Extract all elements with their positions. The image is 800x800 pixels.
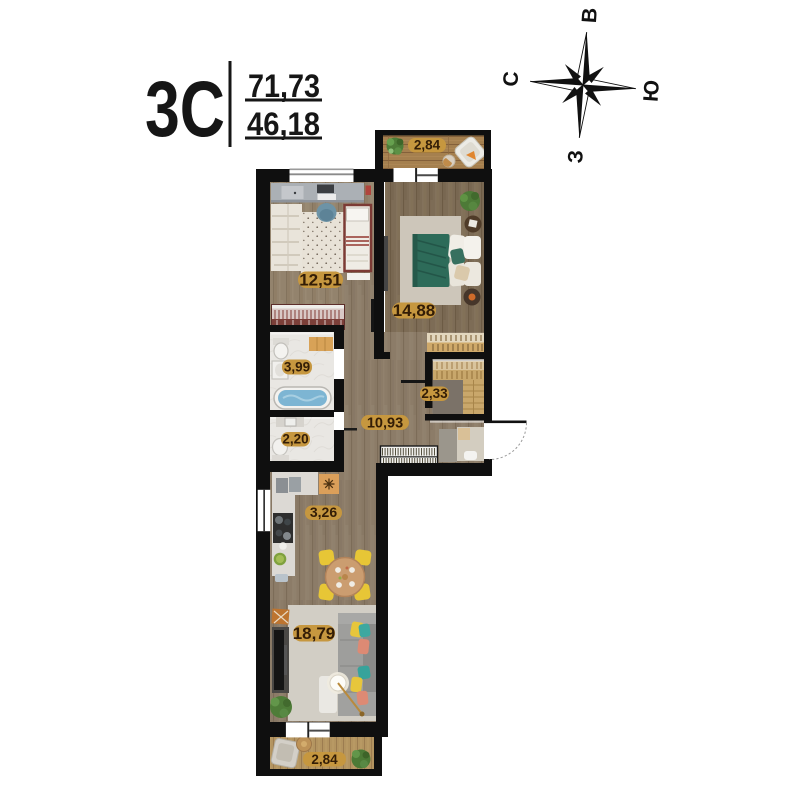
svg-text:14,88: 14,88 bbox=[393, 301, 436, 320]
svg-text:З: З bbox=[564, 149, 588, 164]
svg-text:2,33: 2,33 bbox=[421, 386, 448, 401]
svg-text:В: В bbox=[578, 7, 602, 24]
svg-text:2,20: 2,20 bbox=[282, 432, 308, 447]
svg-text:10,93: 10,93 bbox=[367, 415, 403, 431]
svg-text:2,84: 2,84 bbox=[311, 752, 338, 767]
svg-text:3,99: 3,99 bbox=[284, 360, 310, 375]
svg-text:18,79: 18,79 bbox=[293, 624, 336, 643]
svg-text:3С: 3С bbox=[145, 64, 225, 153]
svg-text:Ю: Ю bbox=[640, 79, 664, 102]
svg-text:3,26: 3,26 bbox=[310, 504, 337, 520]
svg-text:С: С bbox=[499, 71, 523, 88]
svg-text:2,84: 2,84 bbox=[414, 138, 441, 153]
svg-text:12,51: 12,51 bbox=[299, 271, 342, 290]
